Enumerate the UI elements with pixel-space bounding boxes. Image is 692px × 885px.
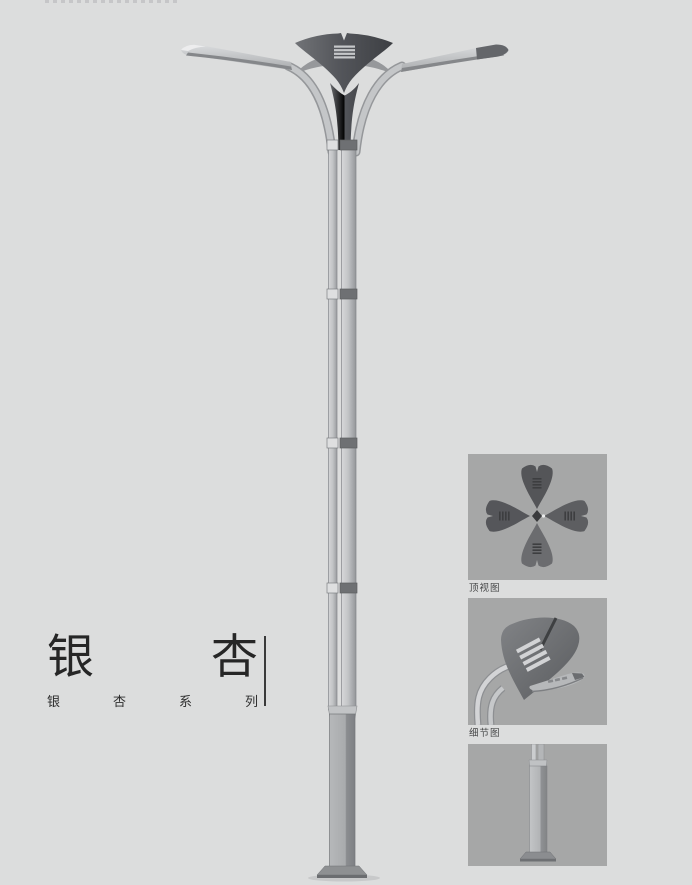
- panel-base-view: [468, 744, 607, 883]
- series-char: 银: [47, 691, 60, 710]
- lamp-head-left: [181, 44, 292, 70]
- panel-label-base-view: [468, 866, 607, 883]
- panel-detail-view: 细节图: [468, 598, 607, 743]
- title-char-second: 杏: [211, 633, 258, 680]
- title-divider-line: [264, 636, 266, 706]
- series-char: 列: [245, 691, 258, 710]
- lamp-arm-left: [288, 66, 332, 152]
- detail-view-image: [468, 598, 607, 725]
- lamp-head-right: [401, 44, 509, 72]
- base-view-image: [468, 744, 607, 866]
- catalog-page: 银 杏 银 杏 系 列: [0, 0, 692, 885]
- title-block: 银 杏 银 杏 系 列: [47, 633, 258, 710]
- pole-base: [308, 706, 380, 882]
- base-plate: [317, 866, 367, 875]
- lamp-arm-right: [356, 66, 402, 152]
- panel-top-view: 顶视图: [468, 454, 607, 598]
- title-char-first: 银: [47, 633, 94, 680]
- detail-panels: 顶视图: [468, 454, 607, 883]
- series-label: 银 杏 系 列: [47, 691, 258, 710]
- panel-label-detail-view: 细节图: [468, 725, 607, 743]
- panel-label-top-view: 顶视图: [468, 580, 607, 598]
- series-char: 系: [179, 691, 192, 710]
- product-title: 银 杏: [47, 633, 258, 680]
- top-view-image: [468, 454, 607, 580]
- series-char: 杏: [113, 691, 126, 710]
- pole: [327, 140, 357, 710]
